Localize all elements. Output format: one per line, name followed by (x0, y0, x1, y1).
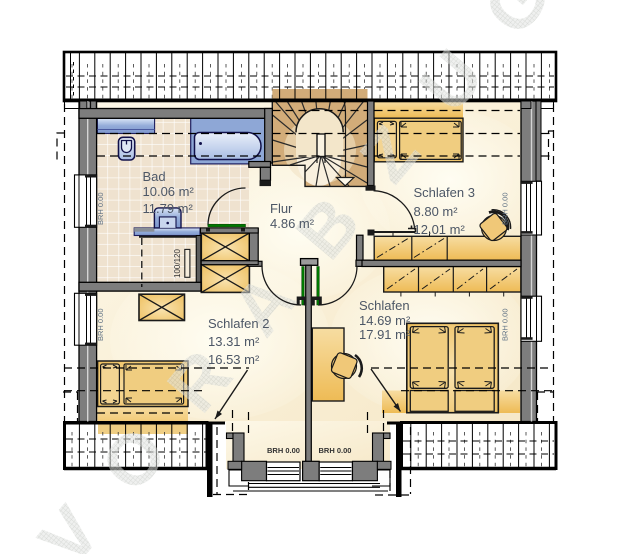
svg-text:12.01 m²: 12.01 m² (414, 222, 466, 237)
svg-text:Schlafen: Schlafen (359, 298, 410, 313)
svg-text:13.31 m²: 13.31 m² (208, 334, 260, 349)
svg-text:Bad: Bad (143, 169, 166, 184)
svg-text:BRH 0.00: BRH 0.00 (267, 446, 300, 455)
svg-text:Schlafen 2: Schlafen 2 (208, 316, 269, 331)
svg-text:11.79 m²: 11.79 m² (143, 201, 194, 216)
svg-text:4.86 m²: 4.86 m² (270, 216, 315, 231)
svg-text:8.80 m²: 8.80 m² (414, 204, 459, 219)
svg-text:BRH 0.00: BRH 0.00 (96, 192, 105, 225)
svg-text:BRH 0.00: BRH 0.00 (501, 308, 510, 341)
svg-text:16.53 m²: 16.53 m² (208, 352, 260, 367)
svg-text:Schlafen 3: Schlafen 3 (414, 185, 475, 200)
svg-text:BRH 0.00: BRH 0.00 (96, 308, 105, 341)
svg-text:17.91 m²: 17.91 m² (359, 327, 411, 342)
svg-text:BRH 0.00: BRH 0.00 (319, 446, 352, 455)
svg-text:BRH 0.00: BRH 0.00 (501, 192, 510, 225)
svg-text:Flur: Flur (270, 201, 293, 216)
svg-text:10.06 m²: 10.06 m² (143, 184, 195, 199)
svg-text:100/120: 100/120 (173, 249, 182, 278)
svg-text:14.69 m²: 14.69 m² (359, 313, 411, 328)
